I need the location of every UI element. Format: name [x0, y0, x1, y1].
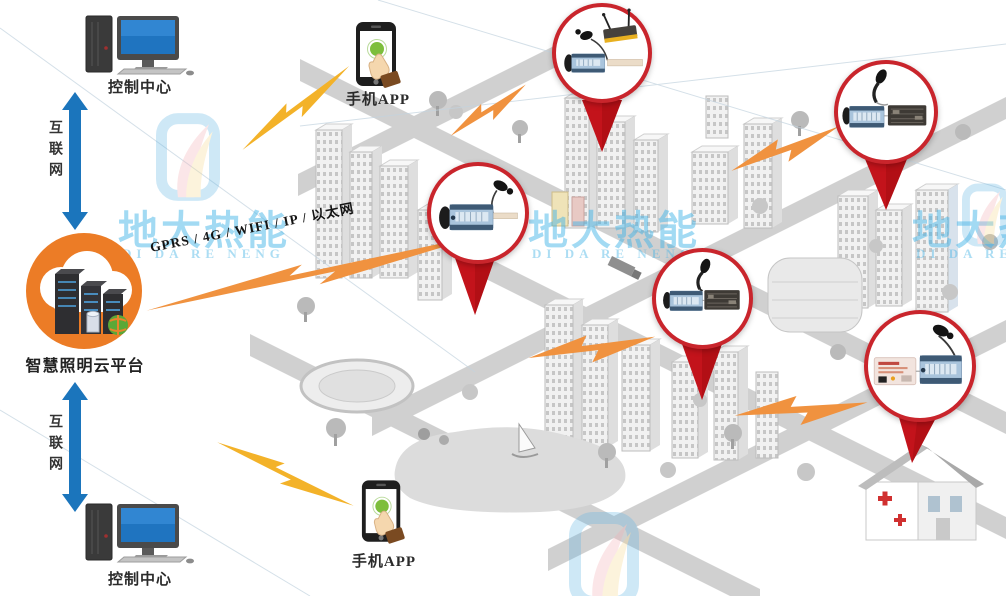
callout-left-middle — [427, 162, 529, 264]
callout-top-right — [834, 60, 938, 164]
lamp-tube-icon — [608, 59, 643, 65]
lamp-tube-icon — [491, 213, 517, 219]
lamp-controller-icon — [920, 356, 962, 384]
callout-bottom-right — [864, 310, 976, 422]
callout-top-right-devices — [838, 64, 934, 160]
callout-top-center-devices — [556, 7, 648, 99]
callout-center — [652, 248, 753, 349]
lamp-controller-icon — [564, 54, 604, 72]
concentrator-icon — [888, 105, 926, 125]
lamp-controller-icon — [663, 291, 702, 311]
diagram-canvas: 地大热能 DI DA RE NENG 地大热能 DI DA RE NENG 地大… — [0, 0, 1006, 596]
lamp-controller-icon — [439, 205, 493, 230]
concentrator-icon — [704, 290, 739, 310]
power-module-icon — [874, 358, 916, 385]
lamp-controller-icon — [842, 106, 884, 127]
callout-left-middle-devices — [431, 166, 525, 260]
wireless-router-icon — [601, 8, 638, 43]
callout-top-center — [552, 3, 652, 103]
antenna-icon — [492, 178, 513, 213]
antenna-icon — [873, 67, 889, 105]
callout-center-devices — [656, 252, 749, 345]
antenna-icon — [698, 257, 712, 291]
callout-bottom-right-devices — [868, 314, 972, 418]
